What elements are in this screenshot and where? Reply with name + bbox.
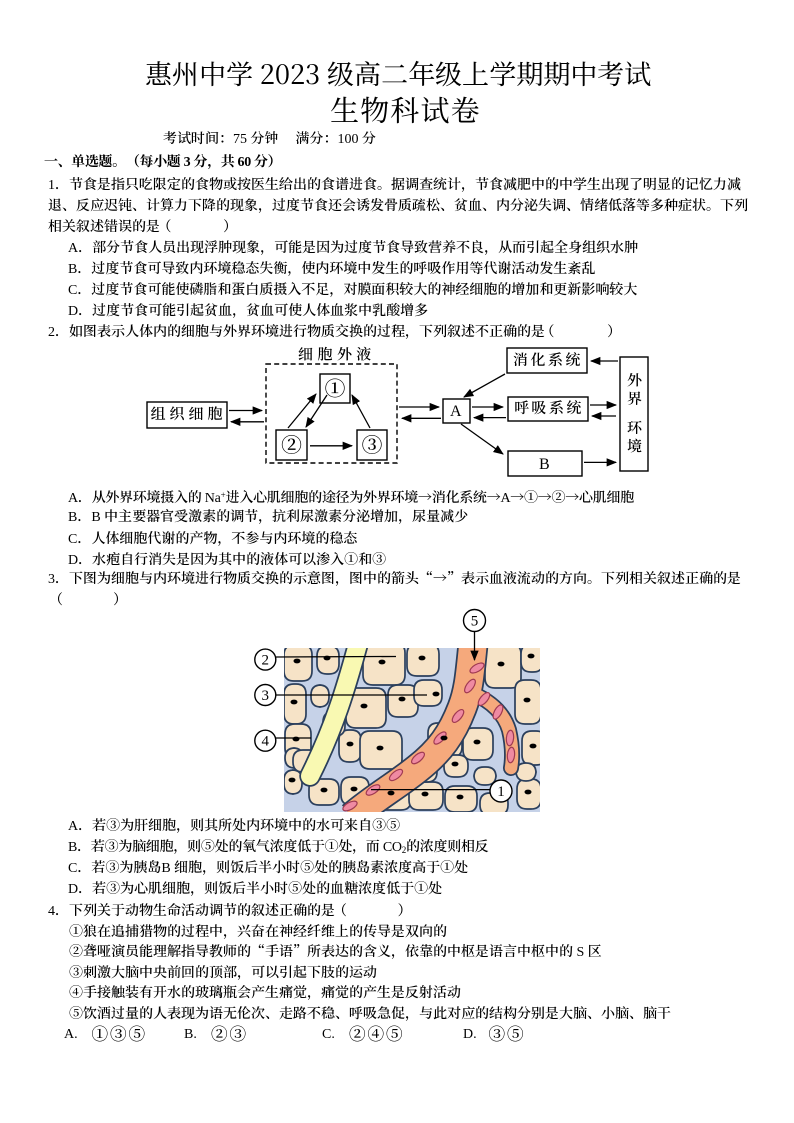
svg-text:境: 境 <box>627 436 642 457</box>
svg-text:2: 2 <box>262 653 270 669</box>
svg-text:消化系统: 消化系统 <box>513 349 583 370</box>
svg-text:1: 1 <box>497 784 505 800</box>
svg-text:界: 界 <box>627 388 642 409</box>
svg-text:细胞外液: 细胞外液 <box>298 344 376 365</box>
svg-text:①: ① <box>325 373 346 403</box>
svg-text:A: A <box>450 403 462 420</box>
svg-text:4: 4 <box>262 734 270 750</box>
svg-text:3: 3 <box>262 688 270 704</box>
svg-text:③: ③ <box>362 430 383 460</box>
svg-text:呼吸系统: 呼吸系统 <box>514 397 584 418</box>
svg-text:②: ② <box>281 430 302 460</box>
svg-text:5: 5 <box>471 614 479 630</box>
svg-text:B: B <box>539 456 550 473</box>
svg-text:组织细胞: 组织细胞 <box>151 403 227 424</box>
